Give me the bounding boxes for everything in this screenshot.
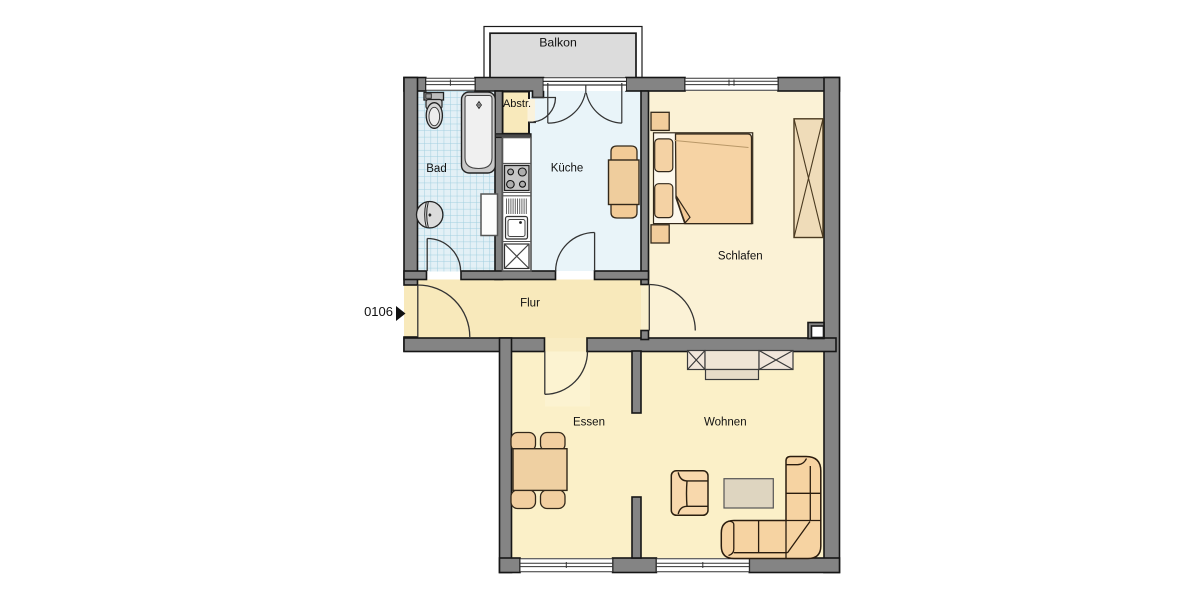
svg-text:Wohnen: Wohnen [704,416,747,428]
svg-text:Bad: Bad [426,163,446,175]
svg-text:Abstr.: Abstr. [503,98,531,110]
svg-text:Flur: Flur [520,297,540,309]
svg-text:Schlafen: Schlafen [718,251,763,263]
svg-text:0106: 0106 [364,304,393,319]
svg-text:Essen: Essen [573,416,605,428]
svg-text:Balkon: Balkon [539,36,577,50]
svg-text:Küche: Küche [551,163,584,175]
